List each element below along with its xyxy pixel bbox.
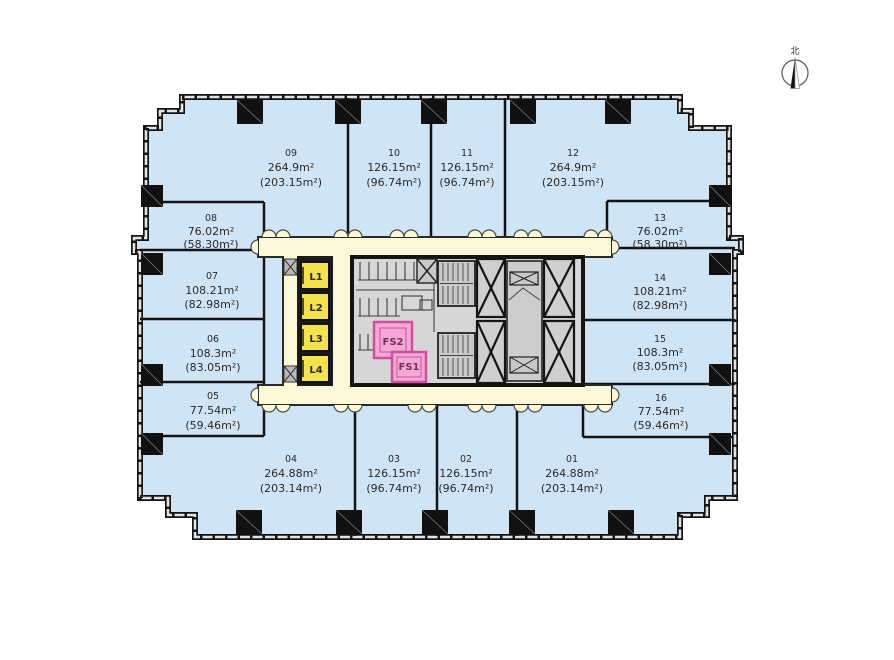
lift-bank: L1 L2 L3 L4	[297, 256, 333, 386]
svg-text:(82.98m²): (82.98m²)	[632, 299, 687, 312]
svg-text:108.3m²: 108.3m²	[190, 347, 237, 360]
svg-text:14: 14	[654, 273, 666, 284]
svg-text:126.15m²: 126.15m²	[367, 467, 421, 480]
svg-text:05: 05	[207, 391, 219, 402]
svg-text:264.9m²: 264.9m²	[268, 161, 315, 174]
north-compass-icon: 北	[782, 46, 808, 89]
svg-text:(96.74m²): (96.74m²)	[439, 176, 494, 189]
lift-L2: L2	[301, 293, 329, 320]
service-core: FS2 FS1	[352, 257, 583, 385]
svg-text:11: 11	[461, 148, 473, 159]
svg-text:(203.14m²): (203.14m²)	[260, 482, 322, 495]
svg-text:76.02m²: 76.02m²	[637, 225, 684, 238]
svg-text:(83.05m²): (83.05m²)	[632, 360, 687, 373]
duct-shaft	[417, 259, 437, 283]
svg-text:07: 07	[206, 271, 218, 282]
lift-L1-label: L1	[309, 272, 322, 283]
lift-L1: L1	[301, 262, 329, 289]
fs2-label: FS2	[383, 337, 404, 348]
svg-text:(203.14m²): (203.14m²)	[541, 482, 603, 495]
svg-text:(82.98m²): (82.98m²)	[184, 298, 239, 311]
svg-text:(96.74m²): (96.74m²)	[366, 176, 421, 189]
lift-L3: L3	[301, 324, 329, 351]
svg-text:264.88m²: 264.88m²	[545, 467, 599, 480]
svg-text:126.15m²: 126.15m²	[440, 161, 494, 174]
svg-text:108.21m²: 108.21m²	[185, 284, 239, 297]
svg-text:(203.15m²): (203.15m²)	[542, 176, 604, 189]
lift-L3-label: L3	[309, 334, 322, 345]
svg-text:03: 03	[388, 454, 400, 465]
svg-text:126.15m²: 126.15m²	[439, 467, 493, 480]
svg-text:02: 02	[460, 454, 472, 465]
svg-text:(58.30m²): (58.30m²)	[632, 238, 687, 251]
svg-text:15: 15	[654, 334, 666, 345]
svg-text:16: 16	[655, 393, 667, 404]
svg-text:09: 09	[285, 148, 297, 159]
svg-text:108.21m²: 108.21m²	[633, 285, 687, 298]
lift-L4-label: L4	[309, 365, 322, 376]
lift-L2-label: L2	[309, 303, 322, 314]
floor-plan-page: FS2 FS1 L1 L2 L3 L4	[0, 0, 894, 660]
svg-text:(96.74m²): (96.74m²)	[438, 482, 493, 495]
svg-text:108.3m²: 108.3m²	[637, 346, 684, 359]
fire-stair-fs1: FS1	[392, 352, 426, 382]
svg-text:77.54m²: 77.54m²	[190, 404, 237, 417]
north-label: 北	[790, 46, 799, 57]
lift-L4: L4	[301, 355, 329, 382]
svg-text:264.9m²: 264.9m²	[550, 161, 597, 174]
svg-text:12: 12	[567, 148, 579, 159]
svg-text:(58.30m²): (58.30m²)	[183, 238, 238, 251]
svg-text:264.88m²: 264.88m²	[264, 467, 318, 480]
svg-text:(96.74m²): (96.74m²)	[366, 482, 421, 495]
svg-text:(59.46m²): (59.46m²)	[633, 419, 688, 432]
fs1-label: FS1	[399, 362, 420, 373]
stairwell-bottom	[438, 333, 475, 378]
svg-text:10: 10	[388, 148, 400, 159]
svg-text:(59.46m²): (59.46m²)	[185, 419, 240, 432]
svg-text:06: 06	[207, 334, 219, 345]
floor-plan-drawing: FS2 FS1 L1 L2 L3 L4	[0, 0, 894, 660]
svg-text:76.02m²: 76.02m²	[188, 225, 235, 238]
svg-text:77.54m²: 77.54m²	[638, 405, 685, 418]
svg-text:(83.05m²): (83.05m²)	[185, 361, 240, 374]
machine-room	[507, 261, 542, 381]
svg-text:126.15m²: 126.15m²	[367, 161, 421, 174]
stairwell-top	[438, 261, 475, 306]
svg-text:(203.15m²): (203.15m²)	[260, 176, 322, 189]
svg-text:04: 04	[285, 454, 297, 465]
svg-text:13: 13	[654, 213, 666, 224]
svg-text:01: 01	[566, 454, 578, 465]
svg-text:08: 08	[205, 213, 217, 224]
